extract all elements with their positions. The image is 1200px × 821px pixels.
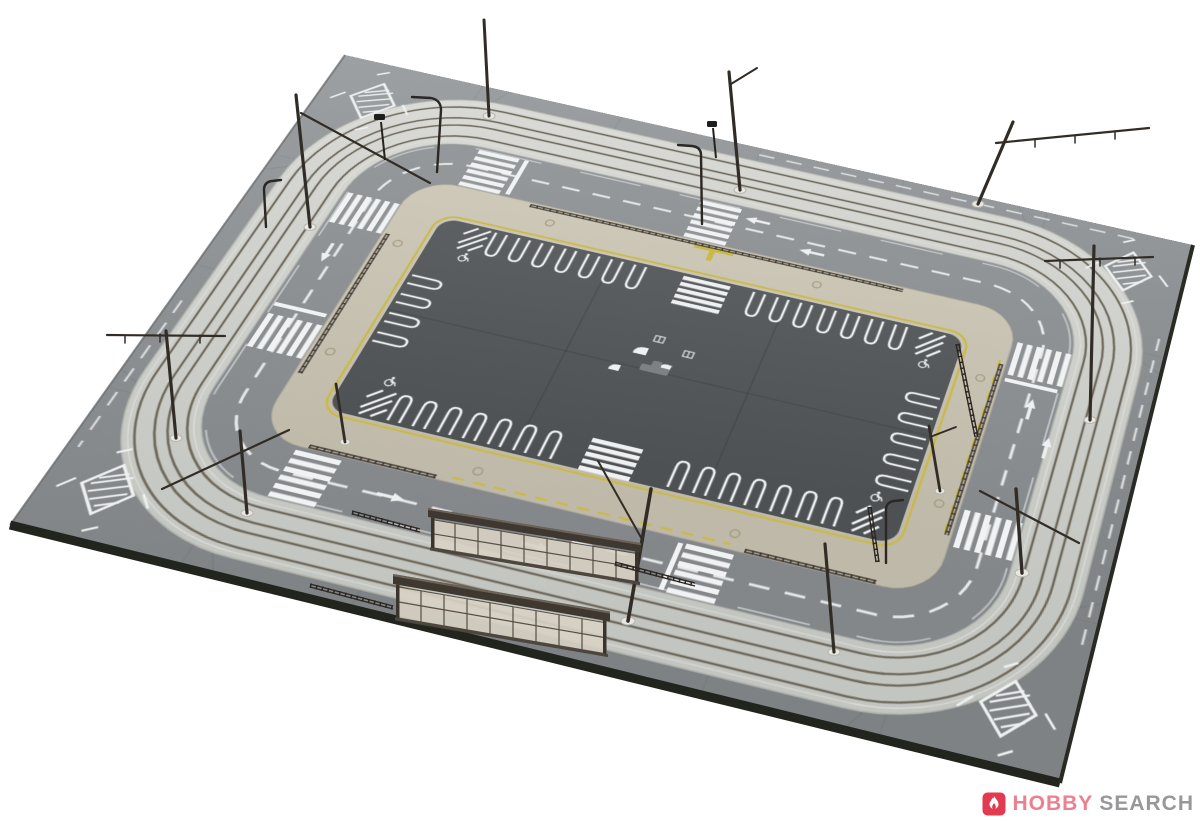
catenary-pole bbox=[978, 122, 1149, 204]
catenary-pole bbox=[296, 95, 430, 227]
tram-stop-shelter bbox=[428, 508, 641, 585]
catenary-pole bbox=[929, 426, 956, 491]
railing-fence bbox=[956, 344, 978, 437]
street-lamp bbox=[886, 500, 903, 563]
street-lamp bbox=[678, 145, 702, 224]
watermark: HOBBY SEARCH bbox=[982, 792, 1194, 816]
street-lamps bbox=[264, 97, 903, 563]
catenary-pole bbox=[336, 384, 345, 442]
catenary-pole bbox=[1045, 246, 1153, 420]
railing-fence bbox=[868, 507, 879, 562]
catenary-pole bbox=[729, 68, 757, 190]
overlay-graphic bbox=[0, 0, 1200, 821]
roadside-fences bbox=[310, 344, 978, 609]
product-photo: HOBBY SEARCH bbox=[0, 0, 1200, 821]
watermark-suffix: SEARCH bbox=[1099, 792, 1194, 816]
traffic-signal bbox=[707, 121, 717, 158]
railing-fence bbox=[352, 511, 420, 532]
watermark-brand: HOBBY bbox=[1012, 792, 1093, 816]
catenary-pole bbox=[484, 20, 489, 116]
flame-icon bbox=[982, 792, 1006, 816]
board-edge bbox=[10, 55, 1193, 783]
catenary-pole bbox=[162, 430, 289, 513]
traffic-signals bbox=[374, 114, 717, 160]
tram-stop-shelters bbox=[393, 508, 641, 657]
catenary-pole bbox=[825, 544, 834, 652]
street-lamp bbox=[412, 97, 441, 172]
street-lamp bbox=[264, 180, 281, 227]
catenary-pole bbox=[980, 489, 1079, 573]
catenary-pole bbox=[107, 331, 225, 438]
